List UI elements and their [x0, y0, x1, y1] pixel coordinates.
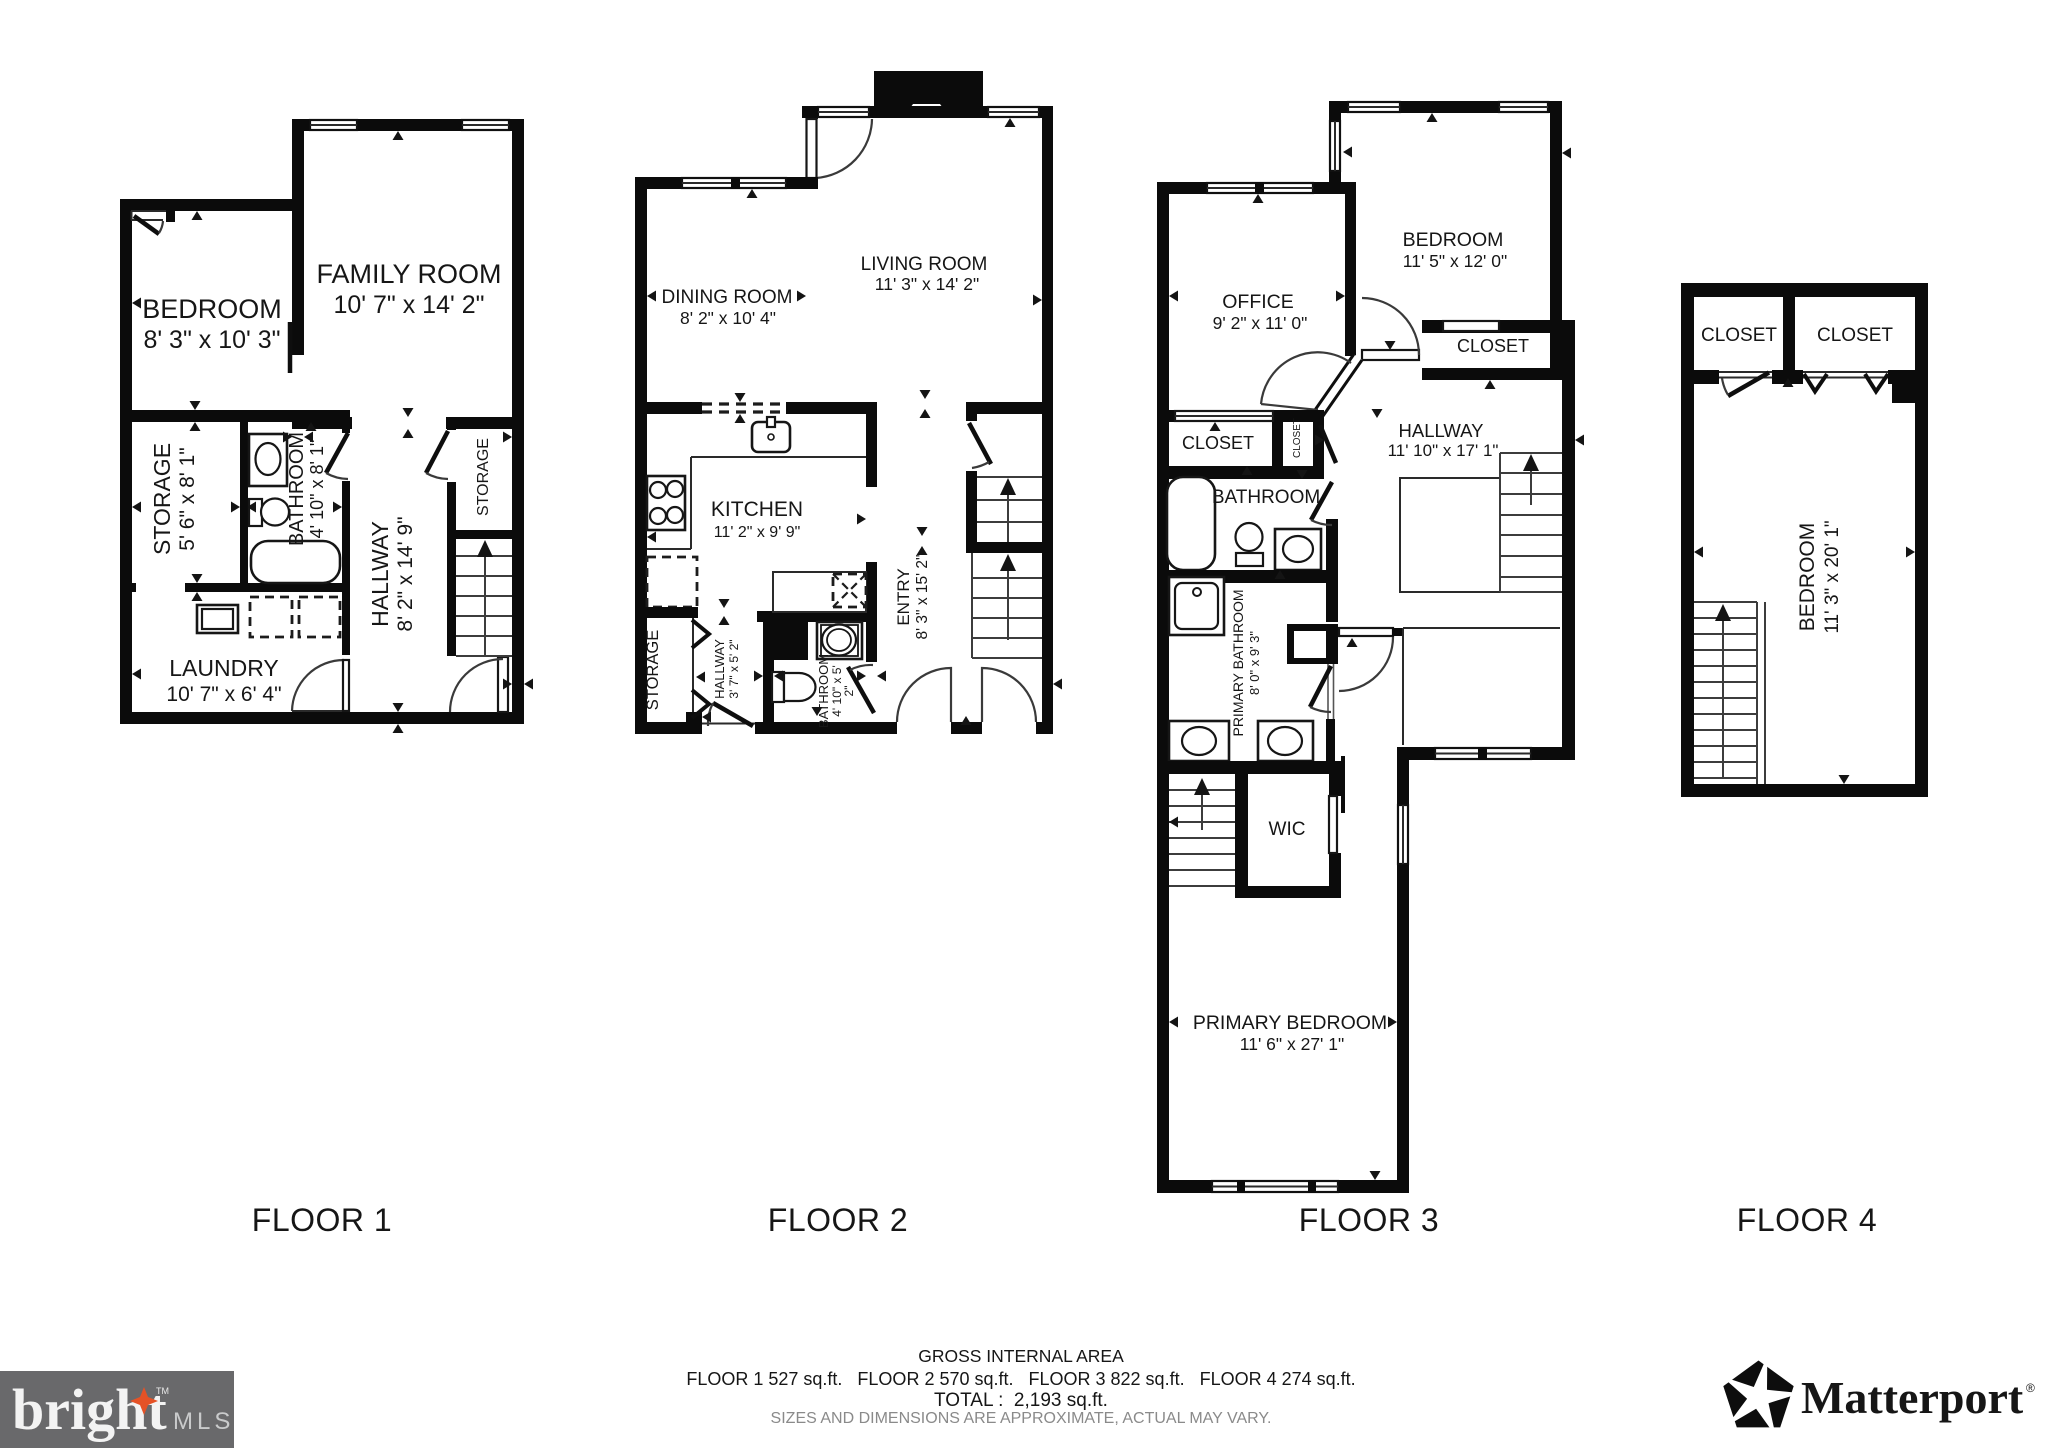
svg-text:4' 10" x 8' 1": 4' 10" x 8' 1": [307, 440, 327, 539]
svg-text:MLS: MLS: [173, 1408, 234, 1435]
svg-text:11' 3" x 20' 1": 11' 3" x 20' 1": [1822, 520, 1843, 633]
svg-text:CLOSET: CLOSET: [1701, 325, 1777, 346]
svg-text:HALLWAY: HALLWAY: [1399, 420, 1484, 441]
svg-text:KITCHEN: KITCHEN: [711, 498, 803, 521]
svg-text:STORAGE: STORAGE: [149, 443, 175, 555]
svg-text:BEDROOM: BEDROOM: [1403, 229, 1504, 251]
svg-text:11' 3" x 14' 2": 11' 3" x 14' 2": [875, 274, 979, 294]
svg-text:11' 10" x 17' 1": 11' 10" x 17' 1": [1388, 441, 1499, 460]
svg-text:5' 6" x 8' 1": 5' 6" x 8' 1": [176, 447, 199, 550]
svg-text:BEDROOM: BEDROOM: [1796, 523, 1819, 632]
svg-text:GROSS INTERNAL AREA: GROSS INTERNAL AREA: [918, 1346, 1124, 1366]
svg-text:®: ®: [2026, 1381, 2035, 1395]
svg-text:10' 7" x 14' 2": 10' 7" x 14' 2": [333, 291, 484, 319]
svg-text:STORAGE: STORAGE: [475, 438, 492, 516]
svg-text:BATHROOM: BATHROOM: [816, 654, 831, 728]
svg-text:2": 2": [842, 686, 856, 697]
svg-text:11' 2" x 9' 9": 11' 2" x 9' 9": [714, 524, 801, 541]
svg-text:TOTAL : 2,193 sq.ft.: TOTAL : 2,193 sq.ft.: [934, 1390, 1108, 1411]
svg-text:SIZES AND DIMENSIONS ARE APPRO: SIZES AND DIMENSIONS ARE APPROXIMATE, AC…: [771, 1410, 1272, 1427]
svg-text:Matterport: Matterport: [1801, 1372, 2024, 1423]
svg-text:FLOOR 2: FLOOR 2: [768, 1202, 908, 1238]
svg-text:HALLWAY: HALLWAY: [367, 521, 393, 627]
svg-text:TM: TM: [156, 1386, 169, 1396]
svg-text:BATHROOM: BATHROOM: [1212, 487, 1320, 508]
svg-text:8' 3" x 10' 3": 8' 3" x 10' 3": [143, 326, 280, 354]
svg-text:11' 5" x 12' 0": 11' 5" x 12' 0": [1403, 251, 1507, 271]
svg-text:8' 2" x 14' 9": 8' 2" x 14' 9": [394, 516, 417, 631]
svg-text:PRIMARY BATHROOM: PRIMARY BATHROOM: [1230, 589, 1246, 736]
svg-text:9' 2" x 11' 0": 9' 2" x 11' 0": [1213, 313, 1308, 333]
svg-text:8' 0" x 9' 3": 8' 0" x 9' 3": [1247, 631, 1262, 695]
svg-text:DINING ROOM: DINING ROOM: [662, 287, 793, 308]
svg-text:10' 7" x 6' 4": 10' 7" x 6' 4": [166, 683, 281, 706]
svg-text:3' 7" x 5' 2": 3' 7" x 5' 2": [727, 639, 741, 698]
svg-text:STORAGE: STORAGE: [644, 630, 662, 710]
svg-text:FLOOR 3: FLOOR 3: [1299, 1202, 1439, 1238]
svg-text:CLOSET: CLOSET: [1292, 418, 1303, 458]
svg-text:HALLWAY: HALLWAY: [712, 639, 727, 699]
svg-text:CLOSET: CLOSET: [1457, 336, 1529, 356]
svg-text:CLOSET: CLOSET: [1182, 433, 1254, 453]
svg-text:PRIMARY BEDROOM: PRIMARY BEDROOM: [1193, 1012, 1387, 1034]
svg-text:WIC: WIC: [1269, 819, 1306, 840]
svg-text:FAMILY ROOM: FAMILY ROOM: [316, 259, 501, 289]
svg-text:LIVING ROOM: LIVING ROOM: [861, 254, 988, 275]
svg-text:ENTRY: ENTRY: [894, 568, 913, 625]
svg-text:11' 6" x 27' 1": 11' 6" x 27' 1": [1240, 1034, 1344, 1054]
svg-text:FLOOR 1 527 sq.ft. FLOOR 2 5: FLOOR 1 527 sq.ft. FLOOR 2 570 sq.ft. FL…: [686, 1369, 1355, 1389]
svg-text:FLOOR 4: FLOOR 4: [1737, 1202, 1877, 1238]
svg-text:OFFICE: OFFICE: [1222, 291, 1294, 313]
svg-text:BEDROOM: BEDROOM: [142, 294, 282, 324]
svg-text:8' 2" x 10' 4": 8' 2" x 10' 4": [680, 308, 776, 328]
svg-text:8' 3" x 15' 2": 8' 3" x 15' 2": [914, 554, 931, 639]
svg-text:BATHROOM: BATHROOM: [286, 432, 308, 546]
svg-text:CLOSET: CLOSET: [1817, 325, 1893, 346]
svg-text:FLOOR 1: FLOOR 1: [252, 1202, 392, 1238]
svg-text:LAUNDRY: LAUNDRY: [169, 655, 279, 681]
